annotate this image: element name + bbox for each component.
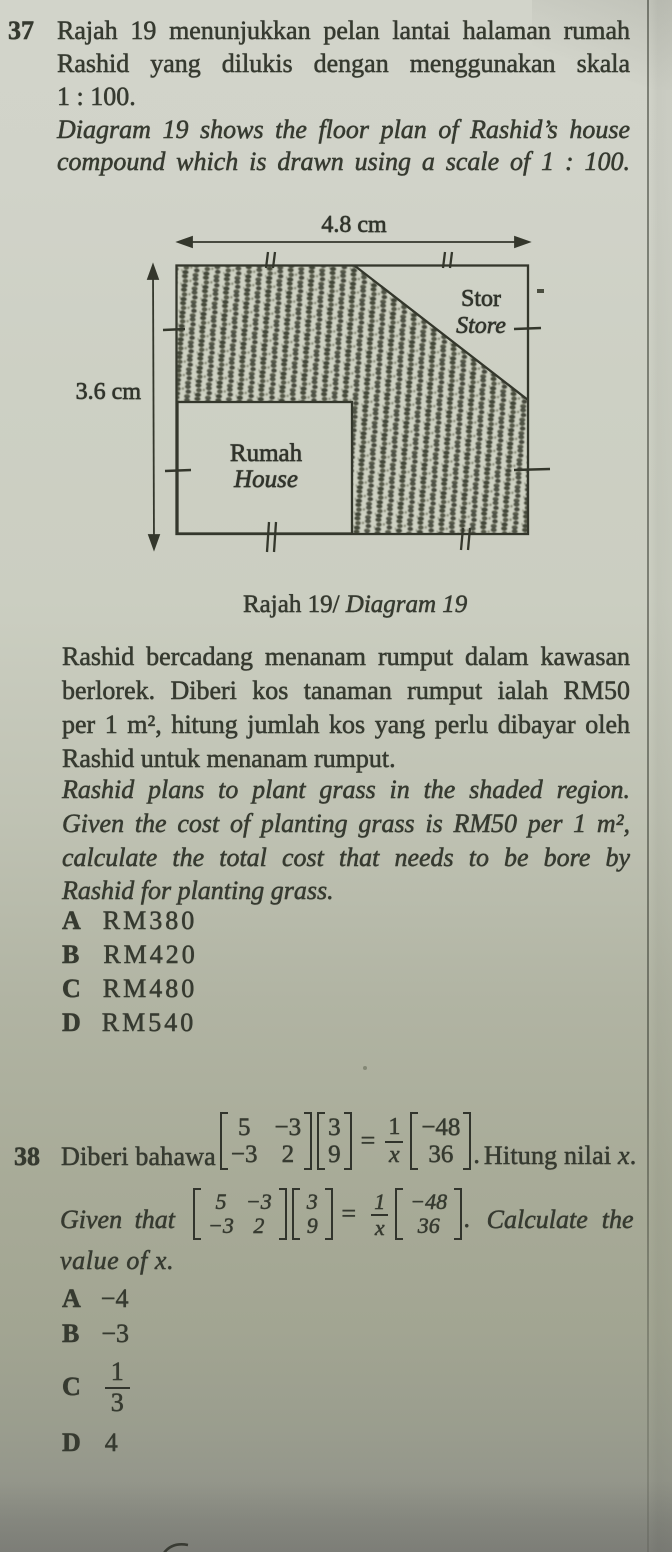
svg-text:Store: Store xyxy=(456,313,506,339)
svg-text:Rumah: Rumah xyxy=(230,440,303,467)
svg-text:4.8 cm: 4.8 cm xyxy=(321,212,387,238)
svg-text:House: House xyxy=(233,466,298,493)
svg-text:Stor: Stor xyxy=(461,286,501,312)
svg-text:3.6 cm: 3.6 cm xyxy=(76,379,142,405)
